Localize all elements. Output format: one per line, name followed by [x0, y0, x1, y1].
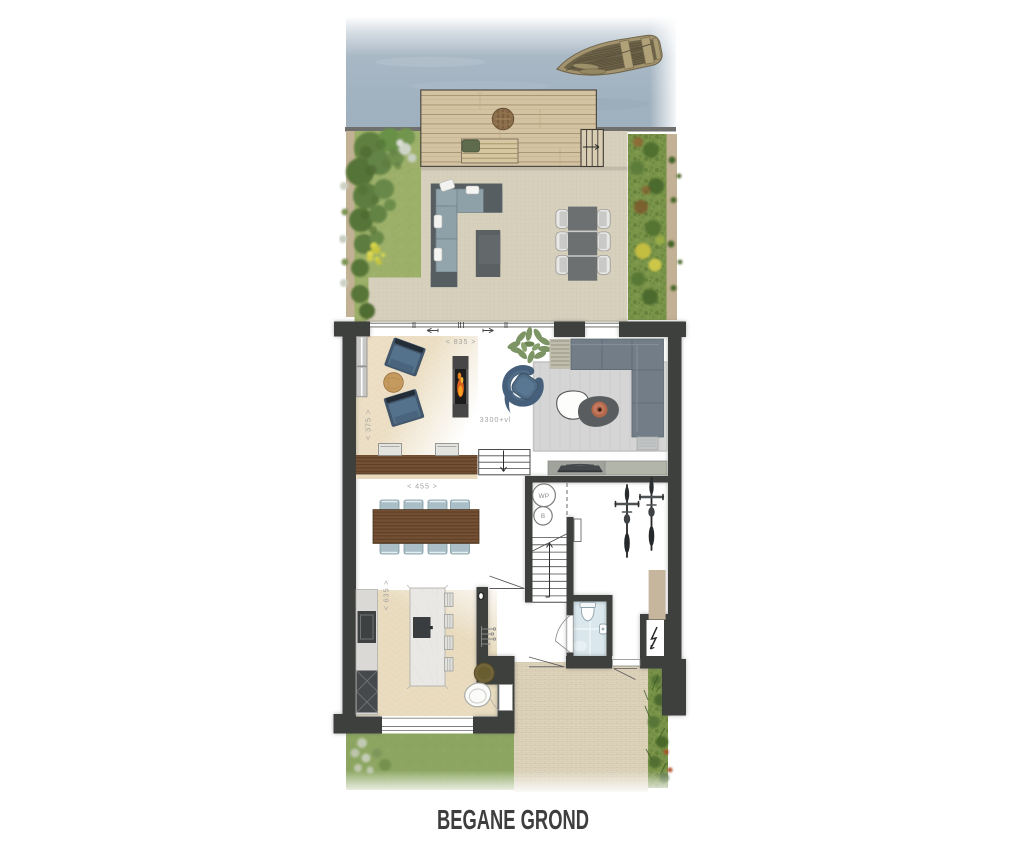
svg-text:WP: WP: [539, 493, 550, 500]
svg-text:< 455 >: < 455 >: [407, 482, 438, 491]
svg-text:B: B: [541, 513, 545, 520]
svg-text:< 635 >: < 635 >: [382, 580, 391, 611]
svg-text:< 835 >: < 835 >: [446, 337, 477, 346]
svg-text:3300+vl: 3300+vl: [480, 415, 512, 424]
svg-text:< 375 >: < 375 >: [364, 409, 373, 440]
svg-text:BEGANE GROND: BEGANE GROND: [437, 804, 589, 835]
